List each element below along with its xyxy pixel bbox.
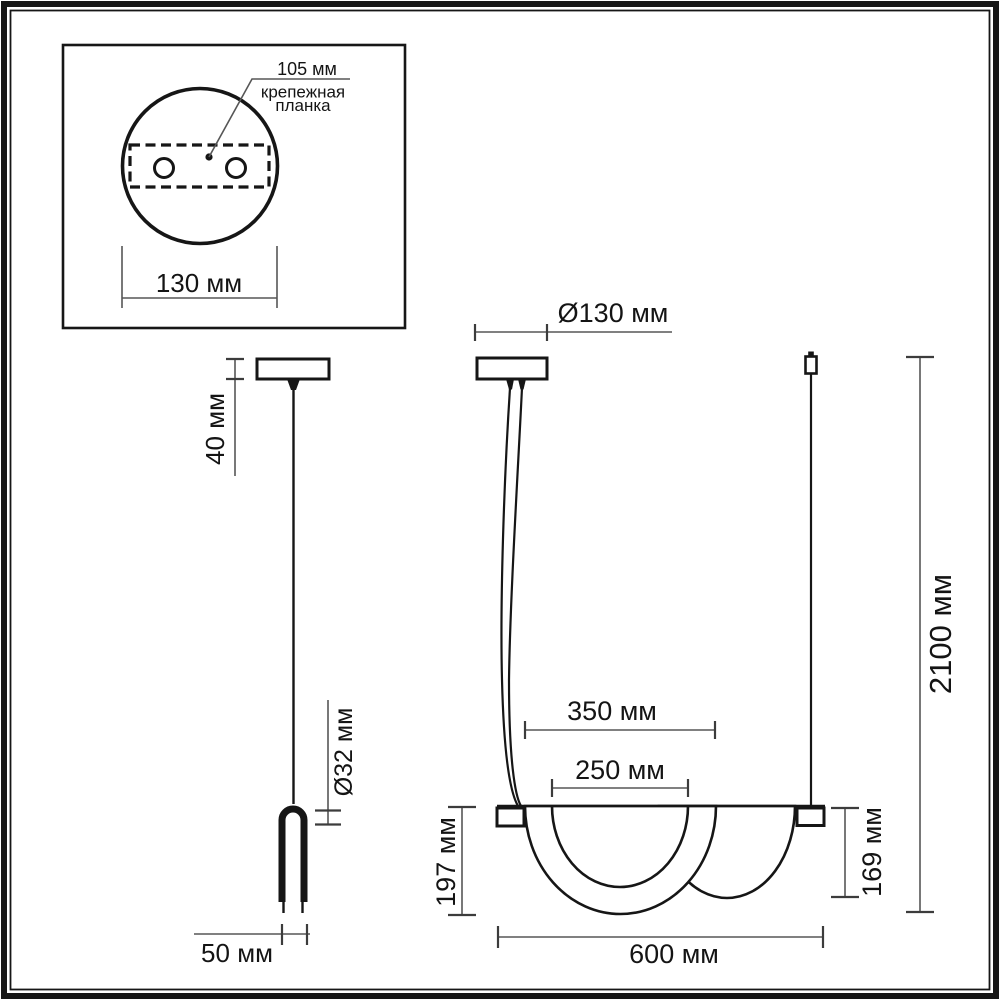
front-canopy [477,358,547,379]
dimension-drawing-sheet: 105 мм крепежная планка 130 мм 40 мм Ø32… [0,0,1000,1000]
canopy-mounting-detail-box: 105 мм крепежная планка 130 мм [63,45,405,328]
lamp-body-side-profile [282,809,304,902]
tube-diameter-label: Ø32 мм [330,708,358,797]
inner-frame-border [11,11,990,990]
wire-fitting-nub [808,352,814,357]
tube-end-cap-right [797,808,824,826]
fixture-width-label: 600 мм [629,939,719,969]
mounting-plate-dashed-outline [130,145,269,187]
inner-shade-width-label: 250 мм [575,755,665,785]
overall-drop-label: 2100 мм [923,574,958,694]
pendant-front-view: Ø130 мм 350 мм 250 мм 197 мм 169 мм 600 … [431,298,958,969]
pendant-side-view: 40 мм Ø32 мм 50 мм [194,359,358,968]
hole-spacing-label: 105 мм [277,59,337,79]
front-cable-gland-right [518,379,526,390]
tube-end-cap-left [497,808,524,826]
left-shade-drop-label: 197 мм [431,817,461,907]
body-width-label: 50 мм [201,938,273,968]
screw-hole-right [227,159,246,178]
mounting-plate-label-line2: планка [275,96,331,115]
outer-frame-border [4,4,996,996]
canopy-height-label: 40 мм [200,393,230,465]
wire-ceiling-fitting [806,357,817,374]
front-suspension-cable-2 [509,388,522,806]
right-shade-drop-label: 169 мм [857,807,887,897]
canopy-top-view-circle [123,89,278,244]
drawing-canvas: 105 мм крепежная планка 130 мм 40 мм Ø32… [0,0,1000,1000]
front-cable-gland-left [506,379,514,390]
outer-shade-width-label: 350 мм [567,696,657,726]
side-canopy [257,359,329,379]
screw-hole-left [155,159,174,178]
canopy-diameter-label: Ø130 мм [558,298,669,328]
canopy-width-label: 130 мм [156,268,242,298]
